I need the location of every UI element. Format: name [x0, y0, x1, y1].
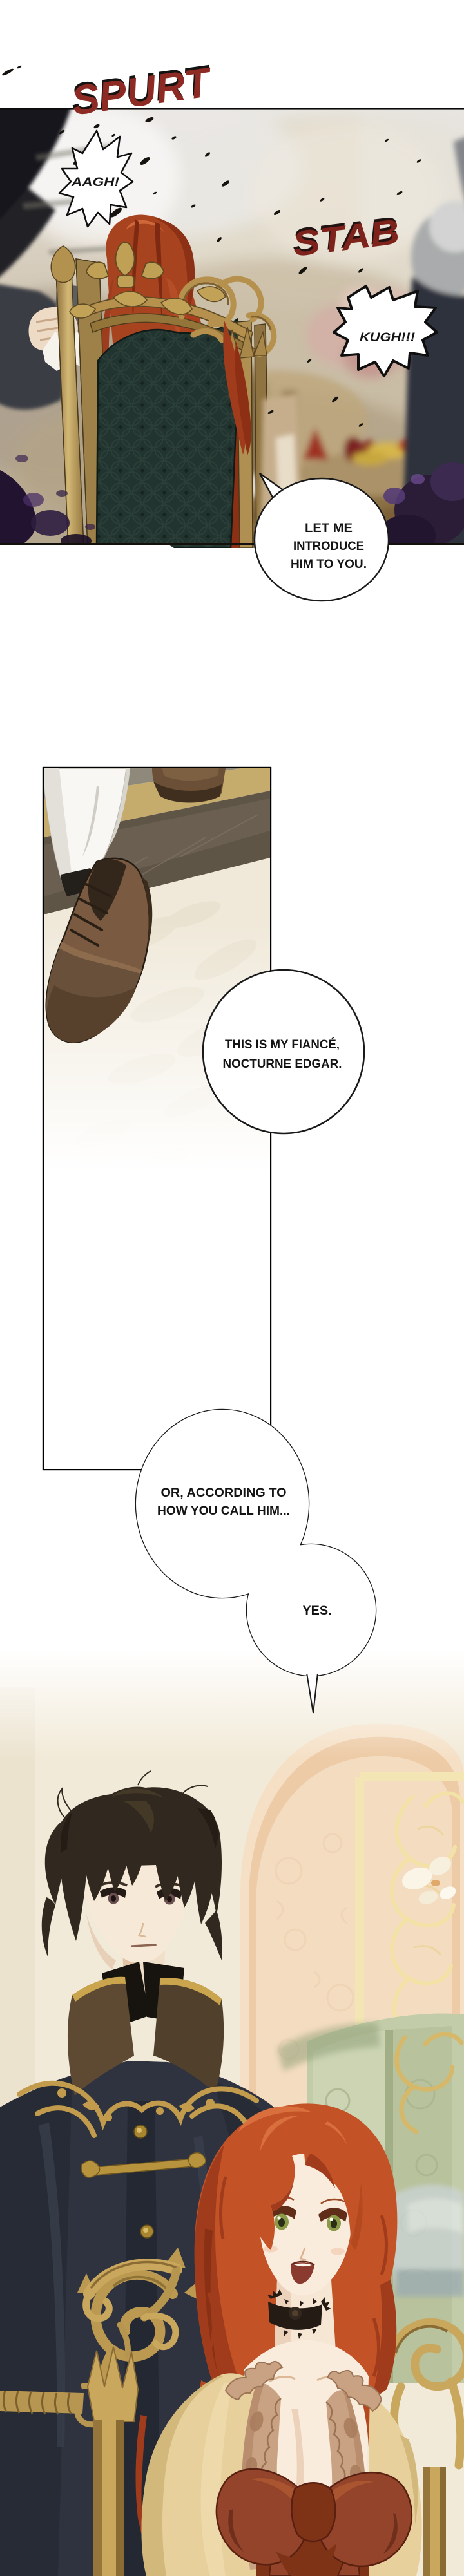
svg-text:HOW YOU CALL HIM...: HOW YOU CALL HIM... [157, 1504, 290, 1518]
svg-text:YES.: YES. [303, 1604, 332, 1618]
svg-text:LET ME: LET ME [305, 522, 353, 535]
svg-text:KUGH!!!: KUGH!!! [360, 331, 415, 345]
svg-text:INTRODUCE: INTRODUCE [293, 540, 364, 553]
svg-text:THIS IS MY FIANCÉ,: THIS IS MY FIANCÉ, [225, 1037, 340, 1052]
svg-text:HIM TO YOU.: HIM TO YOU. [291, 558, 367, 571]
svg-text:NOCTURNE EDGAR.: NOCTURNE EDGAR. [223, 1057, 342, 1071]
svg-text:AAGH!: AAGH! [71, 176, 119, 189]
svg-text:OR, ACCORDING TO: OR, ACCORDING TO [161, 1486, 287, 1500]
